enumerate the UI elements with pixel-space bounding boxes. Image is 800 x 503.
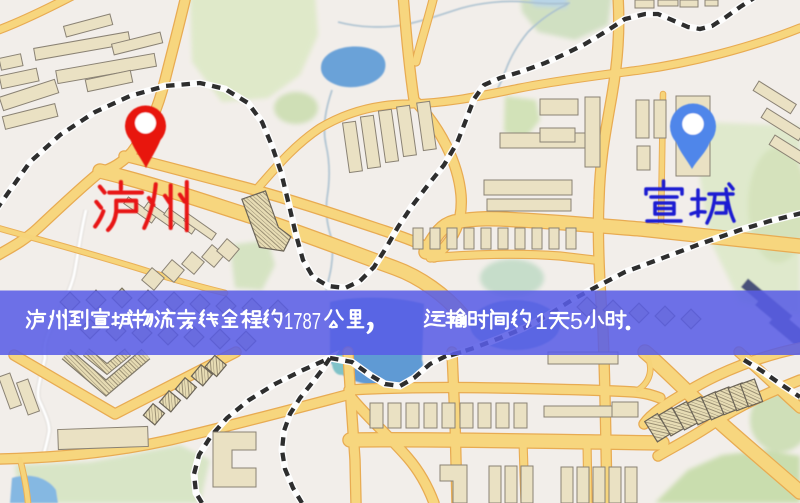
svg-text:1: 1 (535, 308, 548, 334)
svg-text:1787: 1787 (284, 308, 321, 334)
svg-text:5: 5 (570, 308, 583, 334)
